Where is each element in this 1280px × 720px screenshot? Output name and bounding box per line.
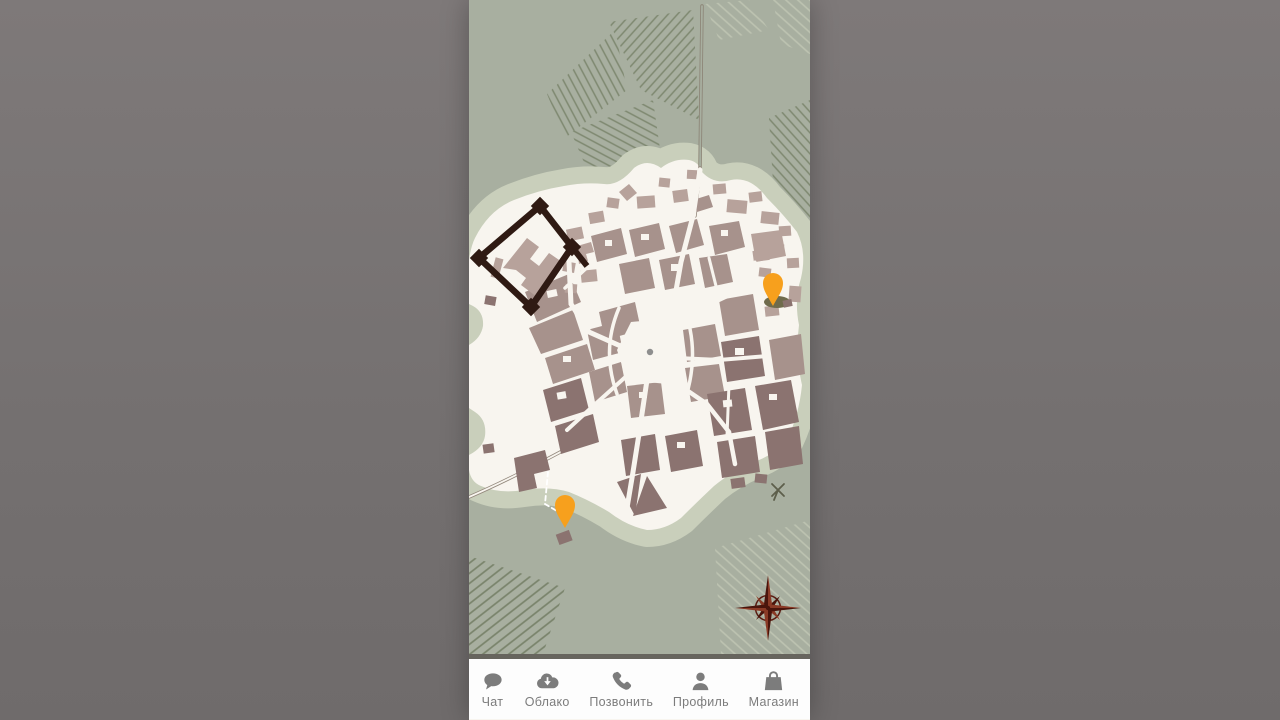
nav-item-call[interactable]: Позвонить	[589, 667, 653, 711]
nav-item-cloud[interactable]: Облако	[525, 667, 570, 711]
chat-icon	[480, 669, 505, 694]
cloud-download-icon	[535, 669, 560, 694]
nav-label-cloud: Облако	[525, 696, 570, 709]
nav-label-profile: Профиль	[673, 696, 729, 709]
game-map[interactable]	[469, 0, 810, 654]
nav-label-chat: Чат	[482, 696, 504, 709]
nav-item-shop[interactable]: Магазин	[749, 667, 799, 711]
phone-screen: Чат Облако Позвонить	[469, 0, 810, 720]
video-frame: Чат Облако Позвонить	[0, 0, 1280, 720]
profile-icon	[688, 669, 713, 694]
bottom-nav: Чат Облако Позвонить	[469, 659, 810, 719]
nav-item-chat[interactable]: Чат	[480, 667, 505, 711]
nav-label-shop: Магазин	[749, 696, 799, 709]
phone-icon	[609, 669, 634, 694]
shop-icon	[761, 669, 786, 694]
nav-item-profile[interactable]: Профиль	[673, 667, 729, 711]
nav-label-call: Позвонить	[589, 696, 653, 709]
